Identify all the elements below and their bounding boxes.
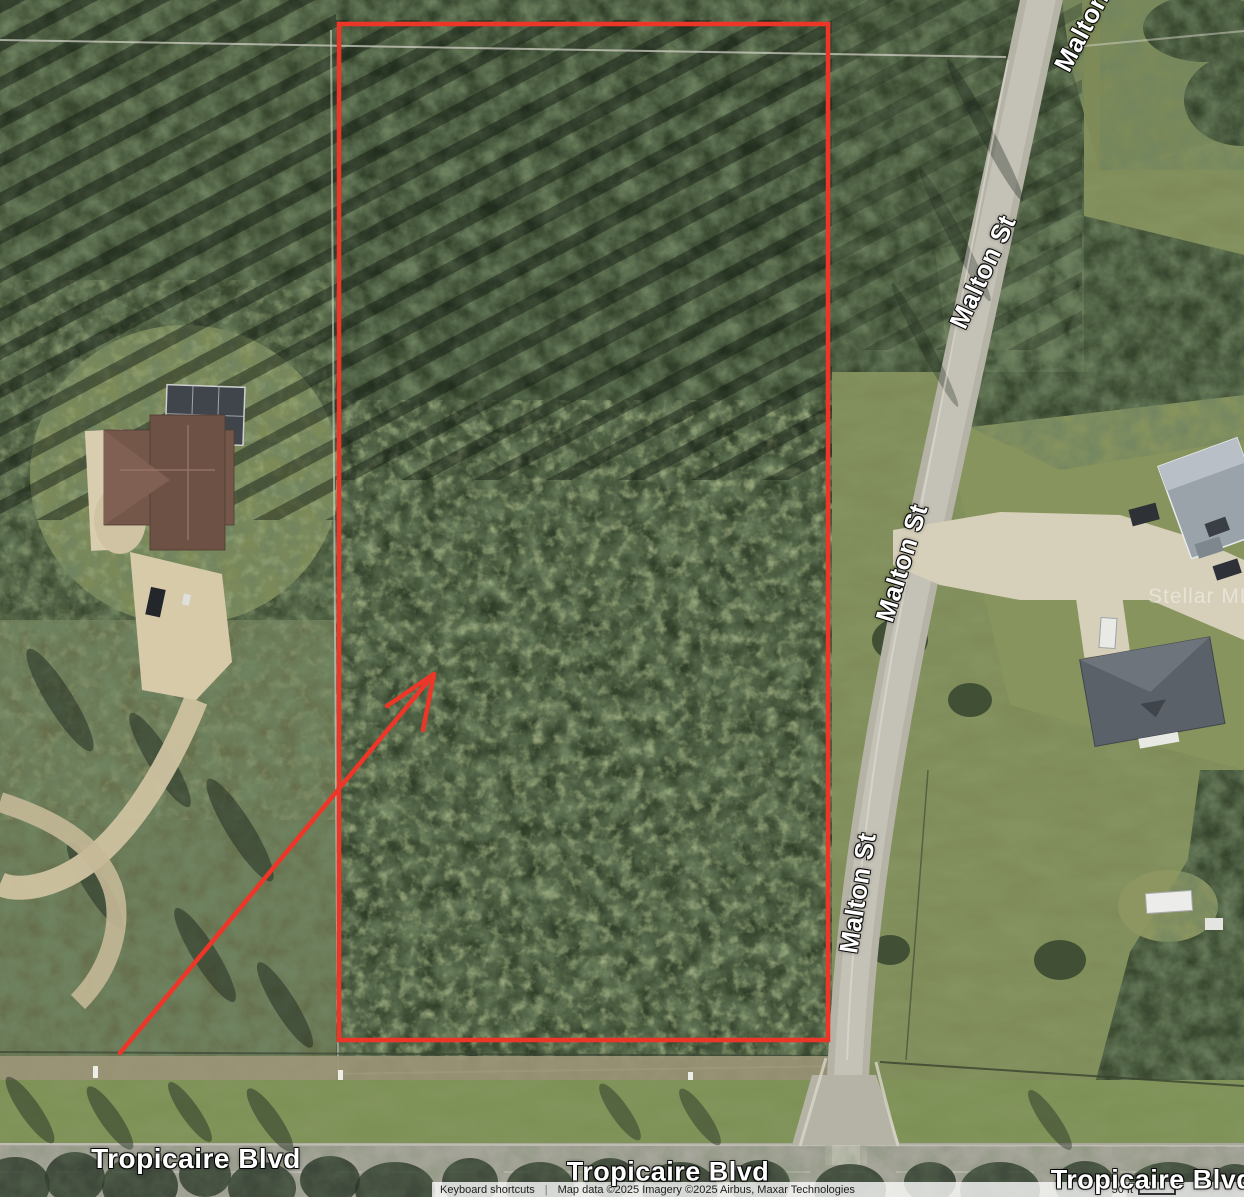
satellite-imagery	[0, 0, 1244, 1197]
map-credits: Map data ©2025 Imagery ©2025 Airbus, Max…	[558, 1183, 855, 1197]
scale-bar	[1138, 1186, 1176, 1195]
keyboard-shortcuts-link[interactable]: Keyboard shortcuts	[440, 1183, 535, 1197]
scale-label: 50 ft	[1112, 1183, 1133, 1197]
attribution-separator: |	[545, 1183, 548, 1197]
satellite-map[interactable]: Malton St Malton St Malton St Malton St …	[0, 0, 1244, 1197]
attribution-bar: Keyboard shortcuts | Map data ©2025 Imag…	[432, 1182, 1244, 1197]
